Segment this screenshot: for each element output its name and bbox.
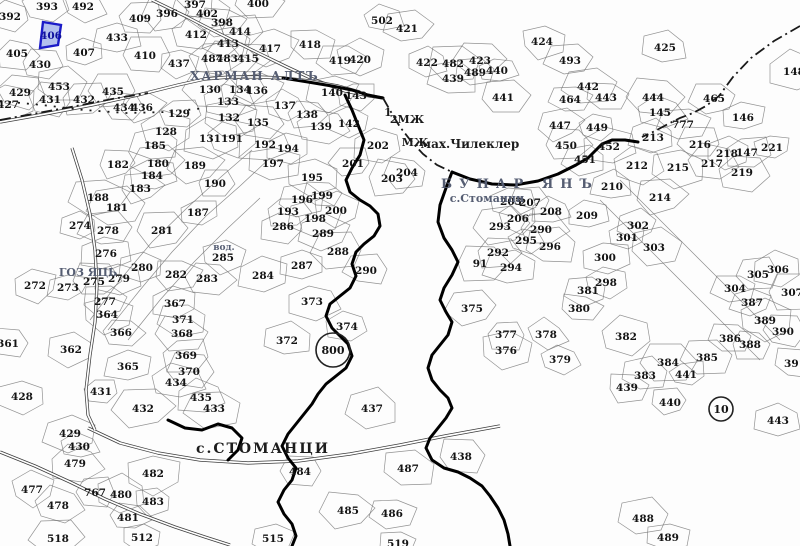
parcel-label-767[interactable]: 767: [84, 487, 106, 499]
parcel-label-437[interactable]: 437: [168, 58, 190, 70]
parcel-label-147[interactable]: 147: [736, 147, 758, 159]
parcel-label-198[interactable]: 198: [304, 213, 326, 225]
parcel-label-196[interactable]: 196: [291, 194, 313, 206]
parcel-label-435[interactable]: 435: [102, 86, 124, 98]
parcel-label-430[interactable]: 430: [68, 441, 90, 453]
parcel-label-204[interactable]: 204: [396, 167, 418, 179]
parcel-label-429[interactable]: 429: [59, 428, 81, 440]
parcel-label-428[interactable]: 428: [11, 391, 33, 403]
parcel-label-380[interactable]: 380: [568, 303, 590, 315]
parcel-label-195[interactable]: 195: [301, 172, 323, 184]
parcel-label-436[interactable]: 436: [131, 102, 153, 114]
parcel-label-281[interactable]: 281: [151, 225, 173, 237]
parcel-label-91[interactable]: 91: [473, 258, 488, 270]
place-label: вод.: [213, 243, 234, 253]
parcel-label-181[interactable]: 181: [106, 202, 128, 214]
parcel-label-142[interactable]: 142: [338, 118, 360, 130]
parcel-label-139[interactable]: 139: [310, 121, 332, 133]
parcel-label-148[interactable]: 148: [783, 66, 800, 78]
parcel-label-305[interactable]: 305: [747, 269, 769, 281]
parcel-label-274[interactable]: 274: [69, 220, 91, 232]
parcel-label-440[interactable]: 440: [486, 65, 508, 77]
parcel-label-382[interactable]: 382: [615, 331, 637, 343]
parcel-label-365[interactable]: 365: [117, 361, 139, 373]
parcel-label-187[interactable]: 187: [187, 207, 209, 219]
parcel-label-185[interactable]: 185: [144, 140, 166, 152]
parcel-label-437[interactable]: 437: [361, 403, 383, 415]
parcel-label-453[interactable]: 453: [48, 81, 70, 93]
parcel-label-417[interactable]: 417: [259, 43, 281, 55]
parcel-label-489[interactable]: 489: [657, 532, 679, 544]
parcel-label-294[interactable]: 294: [500, 262, 522, 274]
parcel-label-133[interactable]: 133: [217, 96, 239, 108]
parcel-label-194[interactable]: 194: [277, 143, 299, 155]
parcel-label-306[interactable]: 306: [767, 264, 789, 276]
parcel-label-432[interactable]: 432: [73, 94, 95, 106]
parcel-label-444[interactable]: 444: [642, 92, 664, 104]
parcel-label-364[interactable]: 364: [96, 309, 118, 321]
parcel-label-129[interactable]: 129: [168, 108, 190, 120]
parcel-label-432[interactable]: 432: [132, 403, 154, 415]
parcel-label-374[interactable]: 374: [336, 321, 358, 333]
parcel-label-477[interactable]: 477: [21, 484, 43, 496]
parcel-label-451[interactable]: 451: [574, 154, 596, 166]
parcel-label-216[interactable]: 216: [689, 139, 711, 151]
parcel-label-518[interactable]: 518: [47, 533, 69, 545]
parcel-label-180[interactable]: 180: [147, 158, 169, 170]
parcel-label-131[interactable]: 131: [199, 133, 221, 145]
parcel-label-479[interactable]: 479: [64, 458, 86, 470]
parcel-label-424[interactable]: 424: [531, 36, 553, 48]
parcel-label-482[interactable]: 482: [442, 58, 464, 70]
parcel-label-396[interactable]: 396: [156, 8, 178, 20]
parcel-label-146[interactable]: 146: [732, 112, 754, 124]
parcel-label-303[interactable]: 303: [643, 242, 665, 254]
parcel-label-512[interactable]: 512: [131, 532, 153, 544]
parcel-label-272[interactable]: 272: [24, 280, 46, 292]
place-label: БУНАР ЯНЪ: [441, 177, 599, 192]
parcel-label-290[interactable]: 290: [355, 265, 377, 277]
parcel-label-431[interactable]: 431: [90, 386, 112, 398]
parcel-label-221[interactable]: 221: [761, 142, 783, 154]
parcel-label-392[interactable]: 392: [0, 11, 21, 23]
parcel-label-368[interactable]: 368: [171, 328, 193, 340]
parcel-label-391[interactable]: 391: [784, 358, 800, 370]
parcel-label-190[interactable]: 190: [204, 178, 226, 190]
parcel-label-488[interactable]: 488: [632, 513, 654, 525]
parcel-label-400[interactable]: 400: [247, 0, 269, 10]
parcel-label-208[interactable]: 208: [540, 206, 562, 218]
parcel-label-421[interactable]: 421: [396, 23, 418, 35]
place-label: 2МЖ: [390, 113, 425, 126]
parcel-label-215[interactable]: 215: [667, 162, 689, 174]
parcel-label-407[interactable]: 407: [73, 47, 95, 59]
parcel-label-199[interactable]: 199: [311, 190, 333, 202]
parcel-label-292[interactable]: 292: [487, 247, 509, 259]
parcel-label-519[interactable]: 519: [387, 538, 409, 546]
circled-marker-number: 10: [713, 403, 729, 416]
parcel-label-289[interactable]: 289: [312, 228, 334, 240]
parcel-label-438[interactable]: 438: [450, 451, 472, 463]
parcel-label-441[interactable]: 441: [492, 92, 514, 104]
parcel-label-300[interactable]: 300: [594, 252, 616, 264]
parcel-label-441[interactable]: 441: [675, 369, 697, 381]
parcel-label-143[interactable]: 143: [345, 90, 367, 102]
parcel-label-452[interactable]: 452: [598, 141, 620, 153]
parcel-label-301[interactable]: 301: [616, 232, 638, 244]
parcel-label-295[interactable]: 295: [515, 235, 537, 247]
parcel-label-373[interactable]: 373: [301, 296, 323, 308]
parcel-label-362[interactable]: 362: [60, 344, 82, 356]
cadastral-map-canvas[interactable]: 4068001039349239240039739640240939841441…: [0, 0, 800, 546]
place-label: ГОЗ ЯЦЬ: [59, 266, 117, 279]
parcel-label-492[interactable]: 492: [72, 1, 94, 13]
parcel-label-280[interactable]: 280: [131, 262, 153, 274]
parcel-label-777[interactable]: 777: [672, 119, 694, 131]
parcel-label-361[interactable]: 361: [0, 338, 19, 350]
parcel-label-430[interactable]: 430: [29, 59, 51, 71]
parcel-label-419[interactable]: 419: [329, 55, 351, 67]
parcel-label-450[interactable]: 450: [555, 140, 577, 152]
parcel-label-371[interactable]: 371: [172, 314, 194, 326]
parcel-label-283[interactable]: 283: [196, 273, 218, 285]
parcel-label-388[interactable]: 388: [739, 339, 761, 351]
parcel-label-387[interactable]: 387: [741, 297, 763, 309]
parcel-label-414[interactable]: 414: [229, 26, 251, 38]
parcel-label-502[interactable]: 502: [371, 15, 393, 27]
parcel-label-478[interactable]: 478: [47, 500, 69, 512]
parcel-label-191[interactable]: 191: [221, 133, 243, 145]
parcel-label-366[interactable]: 366: [110, 327, 132, 339]
parcel-label-276[interactable]: 276: [95, 248, 117, 260]
parcel-label-465[interactable]: 465: [703, 93, 725, 105]
parcel-label-515[interactable]: 515: [262, 533, 284, 545]
parcel-label-427[interactable]: 427: [0, 99, 19, 111]
parcel-label-192[interactable]: 192: [254, 139, 276, 151]
parcel-label-482[interactable]: 482: [142, 468, 164, 480]
parcel-label-213[interactable]: 213: [642, 132, 664, 144]
parcel-label-443[interactable]: 443: [767, 415, 789, 427]
parcel-label-422[interactable]: 422: [416, 57, 438, 69]
parcel-label-447[interactable]: 447: [549, 120, 571, 132]
admin-boundary-dashdot-line: [383, 98, 452, 172]
parcel-label-304[interactable]: 304: [724, 283, 746, 295]
parcel-label-377[interactable]: 377: [495, 329, 517, 341]
parcel-label-439[interactable]: 439: [442, 73, 464, 85]
place-label: мах.Чилеклер: [421, 137, 520, 151]
parcel-label-277[interactable]: 277: [94, 296, 116, 308]
parcel-label-384[interactable]: 384: [657, 357, 679, 369]
parcel-label-288[interactable]: 288: [327, 246, 349, 258]
parcel-label-145[interactable]: 145: [649, 107, 671, 119]
map-viewport[interactable]: 4068001039349239240039739640240939841441…: [0, 0, 800, 546]
parcel-label-433[interactable]: 433: [106, 32, 128, 44]
parcel-label-487[interactable]: 487: [397, 463, 419, 475]
parcel-label-483[interactable]: 483: [142, 496, 164, 508]
parcel-label-485[interactable]: 485: [337, 505, 359, 517]
parcel-label-130[interactable]: 130: [199, 84, 221, 96]
parcel-label-307[interactable]: 307: [781, 287, 800, 299]
parcel-label-136[interactable]: 136: [246, 85, 268, 97]
parcel-label-214[interactable]: 214: [649, 192, 671, 204]
parcel-label-385[interactable]: 385: [696, 352, 718, 364]
parcel-label-284[interactable]: 284: [252, 270, 274, 282]
parcel-label-138[interactable]: 138: [296, 109, 318, 121]
parcel-label-489[interactable]: 489: [464, 67, 486, 79]
place-label: МЖ: [402, 136, 429, 149]
parcel-label-483[interactable]: 483: [216, 53, 238, 65]
parcel-label-440[interactable]: 440: [659, 397, 681, 409]
parcel-label-278[interactable]: 278: [97, 225, 119, 237]
parcel-label-135[interactable]: 135: [247, 117, 269, 129]
parcel-label-212[interactable]: 212: [626, 160, 648, 172]
parcel-label-378[interactable]: 378: [535, 329, 557, 341]
parcel-label-434[interactable]: 434: [165, 377, 187, 389]
parcel-label-443[interactable]: 443: [595, 92, 617, 104]
parcel-label-431[interactable]: 431: [39, 94, 61, 106]
parcel-label-137[interactable]: 137: [274, 100, 296, 112]
parcel-label-410[interactable]: 410: [134, 50, 156, 62]
parcel-label-375[interactable]: 375: [461, 303, 483, 315]
parcel-label-390[interactable]: 390: [772, 326, 794, 338]
parcel-label-202[interactable]: 202: [367, 140, 389, 152]
parcel-label-418[interactable]: 418: [299, 39, 321, 51]
parcel-label-282[interactable]: 282: [165, 269, 187, 281]
parcel-label-200[interactable]: 200: [325, 205, 347, 217]
parcel-label-293[interactable]: 293: [489, 221, 511, 233]
parcel-label-383[interactable]: 383: [634, 370, 656, 382]
parcel-label-140[interactable]: 140: [321, 87, 343, 99]
parcel-label-128[interactable]: 128: [155, 126, 177, 138]
parcel-label-302[interactable]: 302: [627, 220, 649, 232]
parcel-label-481[interactable]: 481: [117, 512, 139, 524]
parcel-label-286[interactable]: 286: [272, 221, 294, 233]
parcel-label-420[interactable]: 420: [349, 54, 371, 66]
parcel-label-273[interactable]: 273: [57, 282, 79, 294]
parcel-label-409[interactable]: 409: [129, 13, 151, 25]
place-label: с.Стоманци: [450, 192, 524, 205]
parcel-label-367[interactable]: 367: [164, 298, 186, 310]
parcel-label-210[interactable]: 210: [601, 181, 623, 193]
parcel-label-193[interactable]: 193: [277, 206, 299, 218]
parcel-label-405[interactable]: 405: [6, 48, 28, 60]
parcel-label-449[interactable]: 449: [586, 122, 608, 134]
place-label: с.СТОМАНЦИ: [196, 441, 330, 457]
parcel-label-376[interactable]: 376: [495, 345, 517, 357]
parcel-label-439[interactable]: 439: [616, 382, 638, 394]
selected-parcel-number[interactable]: 406: [40, 30, 62, 42]
parcel-label-493[interactable]: 493: [559, 55, 581, 67]
parcel-label-197[interactable]: 197: [262, 158, 284, 170]
parcel-label-464[interactable]: 464: [559, 94, 581, 106]
parcel-label-381[interactable]: 381: [577, 285, 599, 297]
parcel-label-379[interactable]: 379: [549, 354, 571, 366]
parcel-label-372[interactable]: 372: [276, 335, 298, 347]
parcel-label-425[interactable]: 425: [654, 42, 676, 54]
parcel-label-484[interactable]: 484: [289, 466, 311, 478]
place-label: ХАРМАН АЛТЪ: [190, 69, 319, 83]
parcel-label-219[interactable]: 219: [731, 167, 753, 179]
parcel-label-296[interactable]: 296: [539, 241, 561, 253]
parcel-label-209[interactable]: 209: [576, 210, 598, 222]
parcel-label-415[interactable]: 415: [237, 53, 259, 65]
parcel-label-183[interactable]: 183: [129, 183, 151, 195]
parcel-label-433[interactable]: 433: [203, 403, 225, 415]
circled-marker-number: 800: [322, 344, 345, 357]
parcel-label-369[interactable]: 369: [175, 350, 197, 362]
parcel-label-480[interactable]: 480: [110, 489, 132, 501]
parcel-label-486[interactable]: 486: [381, 508, 403, 520]
parcel-label-184[interactable]: 184: [141, 170, 163, 182]
parcel-label-189[interactable]: 189: [184, 160, 206, 172]
parcel-label-217[interactable]: 217: [701, 158, 723, 170]
parcel-label-413[interactable]: 413: [217, 38, 239, 50]
parcel-label-182[interactable]: 182: [107, 159, 129, 171]
parcel-label-386[interactable]: 386: [719, 333, 741, 345]
parcel-label-285[interactable]: 285: [212, 252, 234, 264]
parcel-label-393[interactable]: 393: [36, 1, 58, 13]
parcel-label-201[interactable]: 201: [342, 158, 364, 170]
parcel-label-429[interactable]: 429: [9, 87, 31, 99]
parcel-label-287[interactable]: 287: [291, 260, 313, 272]
parcel-label-132[interactable]: 132: [218, 112, 240, 124]
parcel-label-412[interactable]: 412: [185, 29, 207, 41]
